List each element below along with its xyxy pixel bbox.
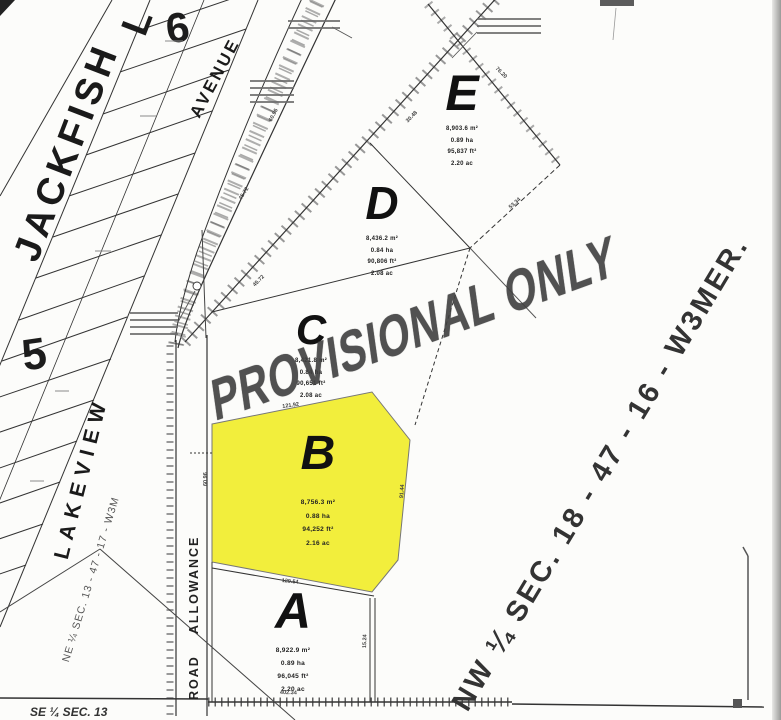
lot-a-label: A bbox=[243, 582, 343, 640]
dimension-label: 60.96 bbox=[203, 472, 209, 486]
illegible-annotation bbox=[250, 80, 294, 104]
area-line: 8,903.6 m² bbox=[412, 124, 512, 136]
lot-d-area-text: 8,436.2 m² 0.84 ha 90,806 ft² 2.08 ac bbox=[332, 234, 432, 280]
road-allowance-label: ROAD ALLOWANCE bbox=[187, 536, 201, 700]
dimension-label: 402.34 bbox=[280, 690, 297, 696]
area-line: 0.89 ha bbox=[243, 657, 343, 670]
scan-corner-artifact bbox=[0, 0, 15, 16]
illegible-annotation bbox=[140, 115, 156, 120]
illegible-annotation bbox=[288, 20, 340, 34]
area-line: 2.20 ac bbox=[412, 159, 512, 171]
lot-d-label: D bbox=[332, 176, 432, 230]
lot-a-area-text: 8,922.9 m² 0.89 ha 96,045 ft² 2.20 ac bbox=[243, 644, 343, 696]
area-line: 8,922.9 m² bbox=[243, 644, 343, 657]
area-line: 8,436.2 m² bbox=[332, 234, 432, 246]
illegible-annotation bbox=[165, 40, 183, 45]
survey-plat-map: JACKFISH L AVENUE LAKEVIEW ROAD ALLOWANC… bbox=[0, 0, 781, 720]
area-line: 0.84 ha bbox=[332, 246, 432, 258]
area-line: 0.89 ha bbox=[412, 136, 512, 148]
area-line: 2.08 ac bbox=[332, 269, 432, 281]
area-line: 95,837 ft² bbox=[412, 147, 512, 159]
area-line: 8,756.3 m² bbox=[268, 496, 368, 510]
se-quarter-section-label: SE ¼ SEC. 13 bbox=[30, 705, 107, 719]
lot-b-area-text: 8,756.3 m² 0.88 ha 94,252 ft² 2.16 ac bbox=[268, 496, 368, 550]
area-line: 90,806 ft² bbox=[332, 257, 432, 269]
area-line: 96,045 ft² bbox=[243, 670, 343, 683]
illegible-annotation bbox=[130, 312, 178, 336]
curved-road-band bbox=[175, 0, 338, 348]
illegible-annotation bbox=[55, 390, 69, 395]
dimension-label: 91.44 bbox=[399, 484, 406, 498]
lot-b-label: B bbox=[268, 426, 368, 481]
dimension-label: 15.24 bbox=[362, 634, 368, 648]
area-line: 0.88 ha bbox=[268, 510, 368, 524]
illegible-annotation bbox=[477, 18, 541, 34]
scan-edge-artifact bbox=[772, 0, 781, 720]
lot-e-area-text: 8,903.6 m² 0.89 ha 95,837 ft² 2.20 ac bbox=[412, 124, 512, 170]
illegible-annotation bbox=[95, 250, 111, 255]
illegible-annotation bbox=[30, 480, 44, 485]
illegible-annotation bbox=[600, 0, 634, 6]
area-line: 2.16 ac bbox=[268, 537, 368, 551]
area-line: 94,252 ft² bbox=[268, 523, 368, 537]
